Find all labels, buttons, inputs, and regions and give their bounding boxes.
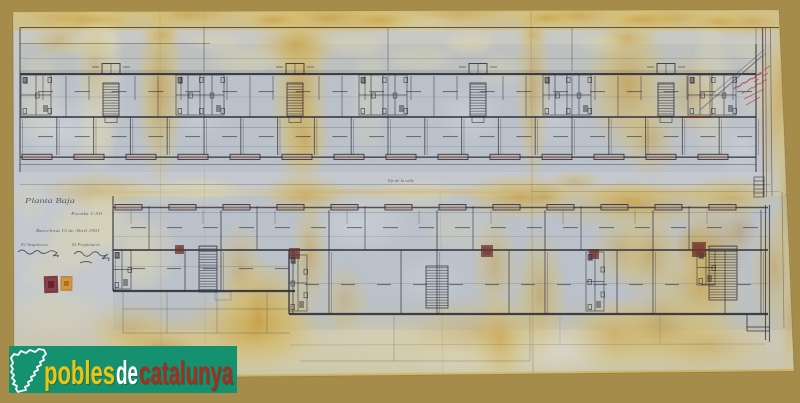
svg-text:Barcelona 15 de Abril 1901: Barcelona 15 de Abril 1901 bbox=[36, 228, 100, 233]
svg-text:Escala 1:50: Escala 1:50 bbox=[70, 211, 103, 216]
svg-text:Planta Baja: Planta Baja bbox=[24, 197, 76, 205]
svg-text:de: de bbox=[116, 354, 138, 391]
svg-text:El Arquitecto: El Arquitecto bbox=[20, 243, 48, 247]
svg-text:El Propietario: El Propietario bbox=[71, 243, 100, 247]
svg-text:pobles: pobles bbox=[44, 354, 115, 391]
svg-text:Eje de la calle: Eje de la calle bbox=[387, 178, 414, 183]
svg-text:catalunya: catalunya bbox=[139, 354, 233, 391]
